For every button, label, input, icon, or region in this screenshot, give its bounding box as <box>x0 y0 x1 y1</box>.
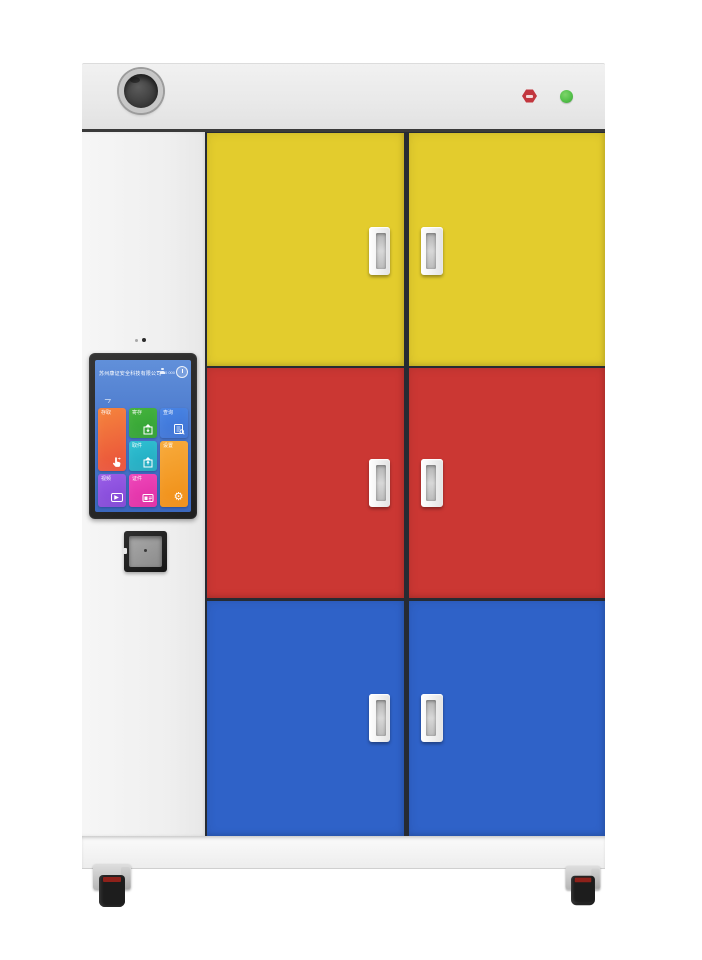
tile-label: 存取 <box>101 411 111 416</box>
brand-badge-icon <box>522 89 537 103</box>
door-handle-top-left[interactable] <box>369 227 390 275</box>
locker-cabinet: 苏州康证安全科技有限公司 00 000 存取 寄存 <box>82 63 605 868</box>
door-handle-middle-right[interactable] <box>421 459 443 507</box>
wheel-tire-lower <box>571 876 595 904</box>
caster-wheel-left <box>93 861 131 909</box>
light-sensor-icon <box>135 339 138 342</box>
tile-label: 设置 <box>163 444 173 449</box>
door-handle-top-right[interactable] <box>421 227 443 275</box>
company-name: 苏州康证安全科技有限公司 <box>99 370 161 377</box>
top-header-panel <box>82 63 605 132</box>
chevron-hint-icon <box>103 399 111 403</box>
qr-fingerprint-scanner[interactable] <box>124 531 167 572</box>
video-play-icon: ▶ <box>110 491 123 504</box>
tile-label: 视频 <box>101 477 111 482</box>
front-camera-icon <box>142 338 146 342</box>
wheel-tire-lower <box>99 875 125 907</box>
tile-deposit-retrieve[interactable]: 存取 <box>98 408 126 471</box>
product-photo-stage: 苏州康证安全科技有限公司 00 000 存取 寄存 <box>0 0 702 960</box>
user-status: 00 000 <box>163 370 175 375</box>
locker-in-icon <box>141 422 154 435</box>
display-bezel: 苏州康证安全科技有限公司 00 000 存取 寄存 <box>89 353 197 519</box>
gear-icon: ⚙ <box>172 491 185 504</box>
scanner-led-icon <box>123 548 127 554</box>
tile-video[interactable]: 视频 ▶ <box>98 474 126 507</box>
tile-records-query[interactable]: 查询 <box>160 408 188 438</box>
door-handle-bottom-right[interactable] <box>421 694 443 742</box>
scanner-window <box>129 536 162 567</box>
tile-retrieve[interactable]: 取件 <box>129 441 157 471</box>
tile-id-card[interactable]: 证件 <box>129 474 157 507</box>
tile-label: 证件 <box>132 477 142 482</box>
locker-out-icon <box>141 455 154 468</box>
tile-label: 寄存 <box>132 411 142 416</box>
touchscreen[interactable]: 苏州康证安全科技有限公司 00 000 存取 寄存 <box>95 360 191 512</box>
status-led <box>560 90 573 103</box>
camera-speaker-icon <box>119 69 163 113</box>
caster-wheel-right <box>566 863 601 907</box>
kiosk-column: 苏州康证安全科技有限公司 00 000 存取 寄存 <box>82 132 206 836</box>
touch-hand-icon <box>110 455 123 468</box>
door-handle-bottom-left[interactable] <box>369 694 390 742</box>
base-plinth <box>82 836 605 868</box>
power-icon[interactable] <box>176 366 188 378</box>
door-grid <box>205 132 605 836</box>
tile-label: 查询 <box>163 411 173 416</box>
tile-store[interactable]: 寄存 <box>129 408 157 438</box>
tile-settings[interactable]: 设置 ⚙ <box>160 441 188 507</box>
record-search-icon <box>172 422 185 435</box>
door-handle-middle-left[interactable] <box>369 459 390 507</box>
id-card-icon <box>141 491 154 504</box>
tile-label: 取件 <box>132 444 142 449</box>
